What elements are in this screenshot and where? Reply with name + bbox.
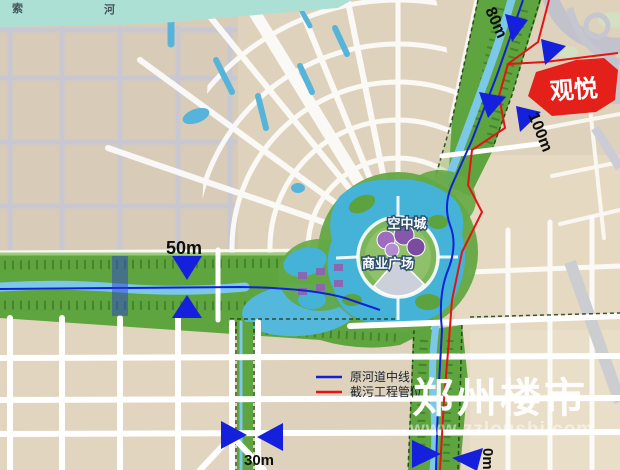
map-canvas: 80m 100m 50m 30m 0m 索 河 观悦 空中城 商业广场 原河道中…	[0, 0, 620, 470]
watermark: 郑州楼市 www.zzloushi.com	[409, 375, 594, 440]
building-dome	[407, 238, 425, 256]
planning-map: 80m 100m 50m 30m 0m 索 河 观悦 空中城 商业广场 原河道中…	[0, 0, 620, 470]
poi-sky-city: 空中城	[387, 216, 426, 231]
building-dome	[385, 243, 399, 257]
dimension-bottom: 0m	[479, 448, 496, 470]
watermark-site-name: 郑州楼市	[412, 375, 588, 421]
river-char-left: 索	[12, 1, 23, 15]
width-overlay-50m	[112, 256, 128, 316]
legend-label-centerline: 原河道中线	[350, 369, 410, 384]
estate-flag-label: 观悦	[549, 73, 599, 105]
river-char-right: 河	[104, 2, 115, 16]
dimension-50m: 50m	[166, 238, 202, 258]
dimension-30m: 30m	[244, 452, 274, 469]
poi-commercial-plaza: 商业广场	[362, 256, 414, 271]
watermark-site-url: www.zzloushi.com	[409, 419, 594, 440]
